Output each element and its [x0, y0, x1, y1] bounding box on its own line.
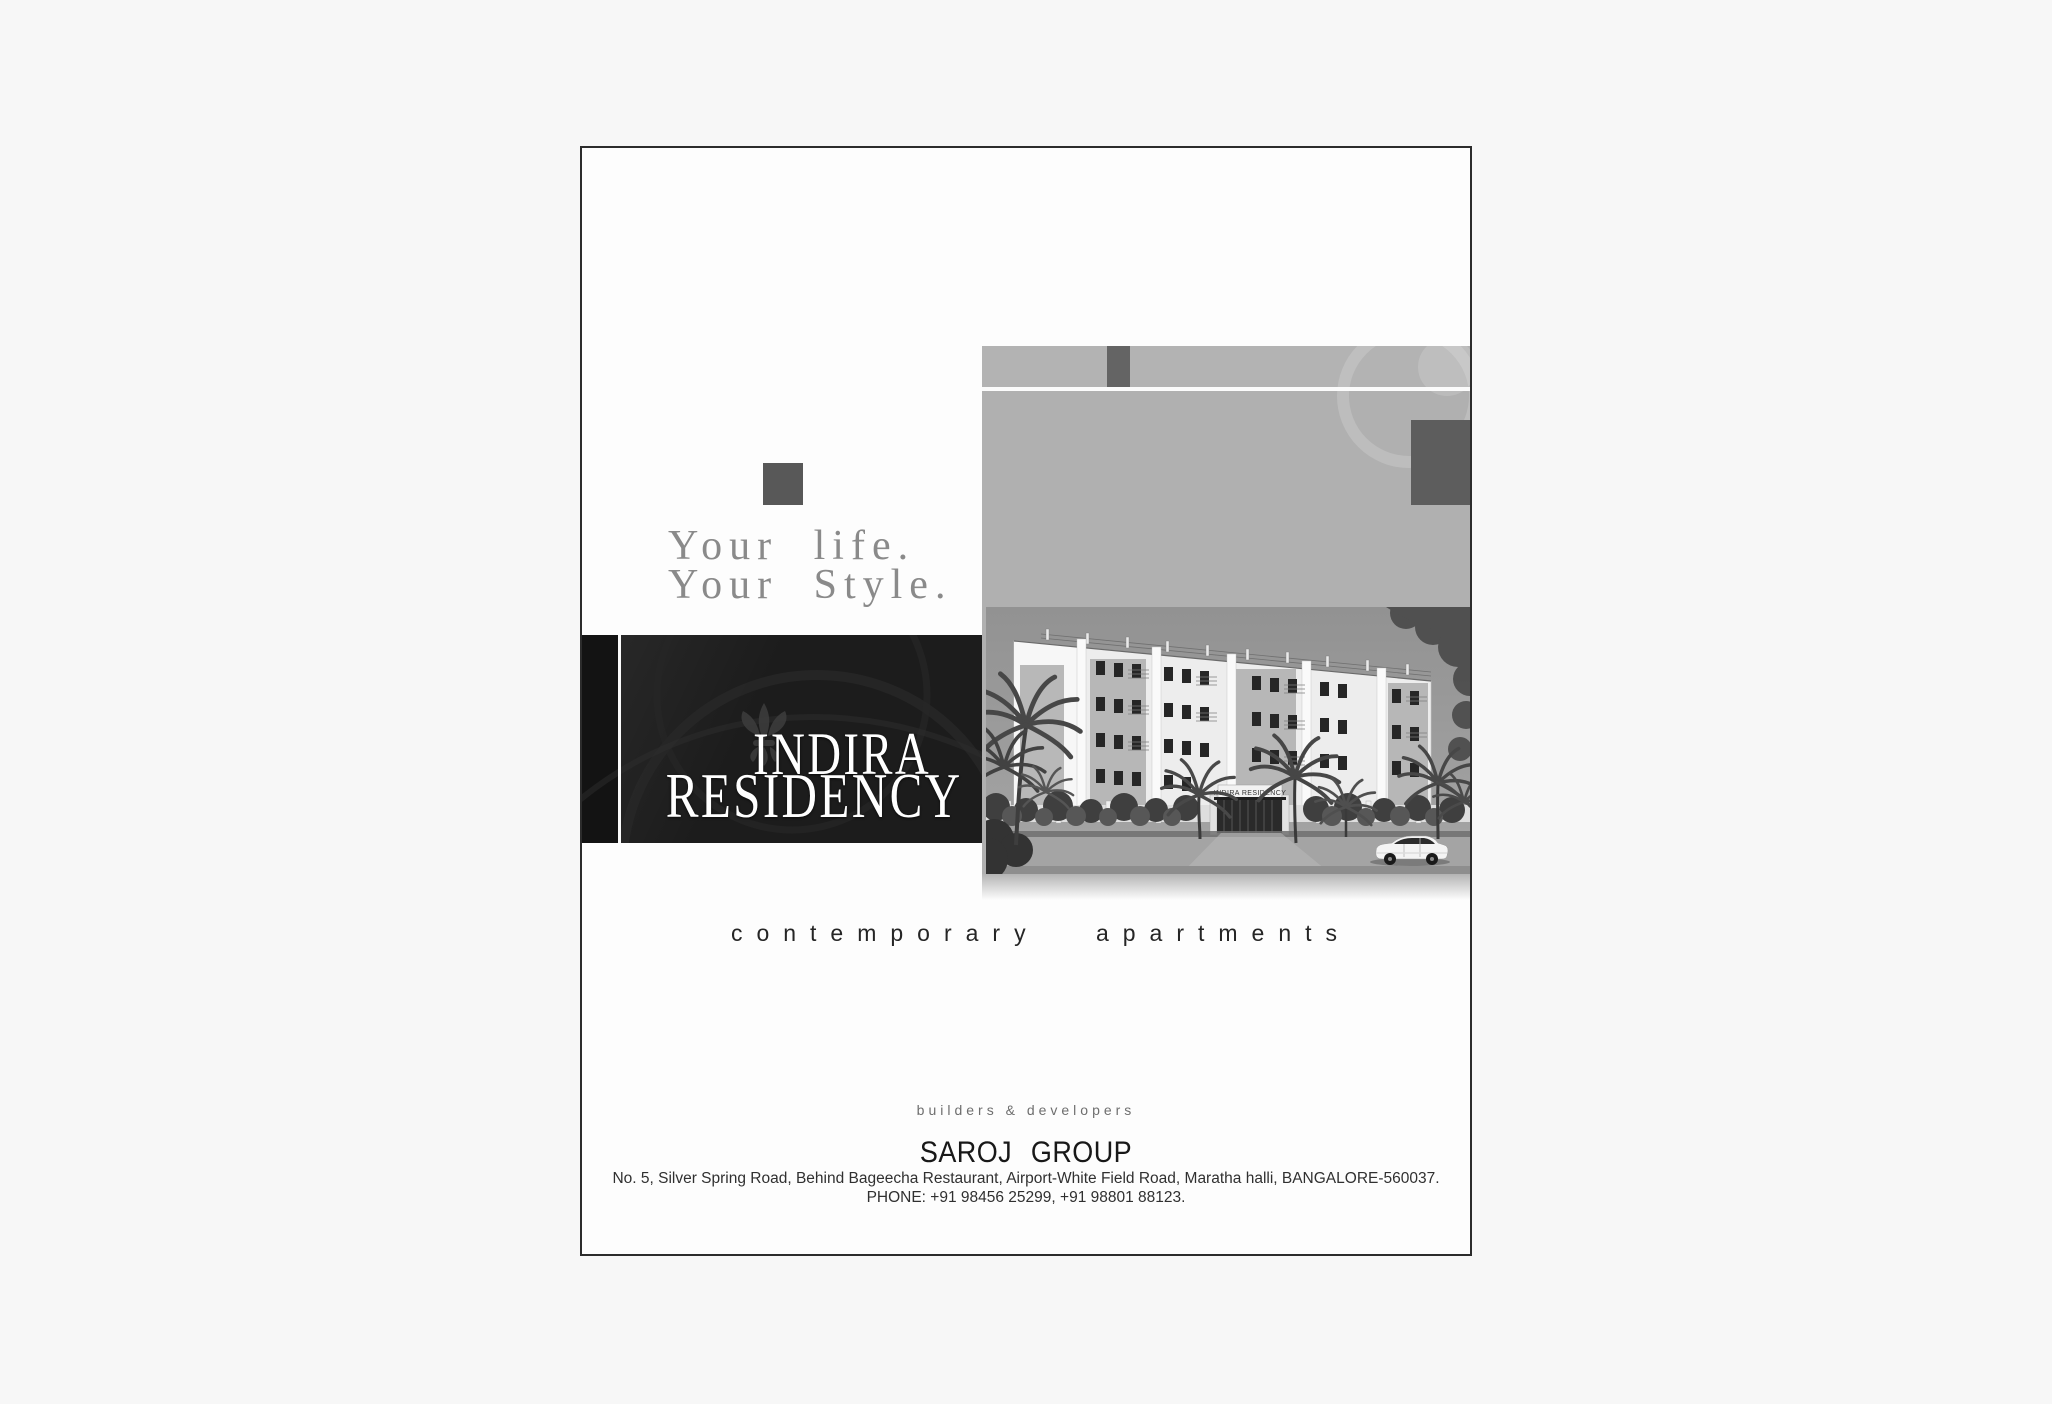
tagline: Your life. Your Style.: [668, 527, 952, 605]
accent-square-decoration: [763, 463, 803, 505]
building-render: INDIRA RESIDENCY: [986, 607, 1470, 874]
company-name: SAROJ GROUP: [626, 1136, 1425, 1170]
banner-divider-line: [618, 635, 621, 843]
photo-accent-square-right: [1411, 420, 1470, 505]
tagline-line2: Your Style.: [668, 566, 952, 605]
project-banner: INDIRA RESIDENCY: [582, 635, 982, 843]
subtitle-text: contemporary apartments: [582, 920, 1470, 947]
address-text: No. 5, Silver Spring Road, Behind Bageec…: [582, 1169, 1470, 1188]
brochure-page: Your life. Your Style. INDI: [580, 146, 1472, 1256]
project-name-line2: RESIDENCY: [666, 765, 963, 828]
address-block: No. 5, Silver Spring Road, Behind Bageec…: [582, 1169, 1470, 1207]
tagline-line1: Your life.: [668, 527, 952, 566]
photo-divider-line: [982, 387, 1470, 391]
photo-accent-square-top: [1107, 346, 1130, 387]
photo-panel: INDIRA RESIDENCY: [982, 346, 1470, 874]
brochure-canvas: Your life. Your Style. INDI: [0, 0, 2052, 1404]
photo-drop-shadow: [982, 874, 1470, 900]
builders-developers-text: builders & developers: [582, 1102, 1470, 1118]
phone-text: PHONE: +91 98456 25299, +91 98801 88123.: [582, 1188, 1470, 1207]
